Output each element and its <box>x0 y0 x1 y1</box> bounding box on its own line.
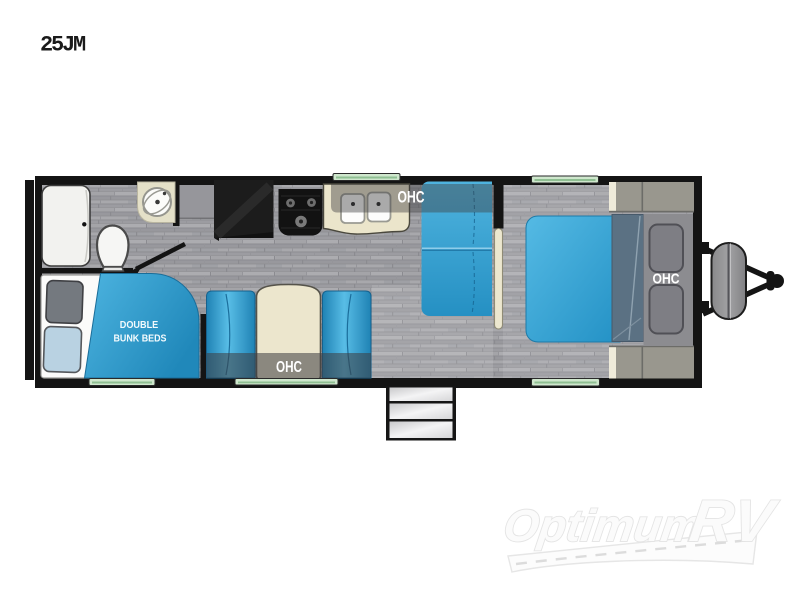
svg-text:DOUBLE: DOUBLE <box>120 320 159 331</box>
svg-text:Optimum: Optimum <box>501 500 706 551</box>
svg-text:OHC: OHC <box>398 189 425 207</box>
svg-text:OHC: OHC <box>653 271 680 288</box>
svg-text:RV: RV <box>686 487 782 554</box>
svg-text:BUNK BEDS: BUNK BEDS <box>114 334 167 345</box>
svg-text:25JM: 25JM <box>40 33 86 58</box>
svg-text:OHC: OHC <box>276 359 302 376</box>
